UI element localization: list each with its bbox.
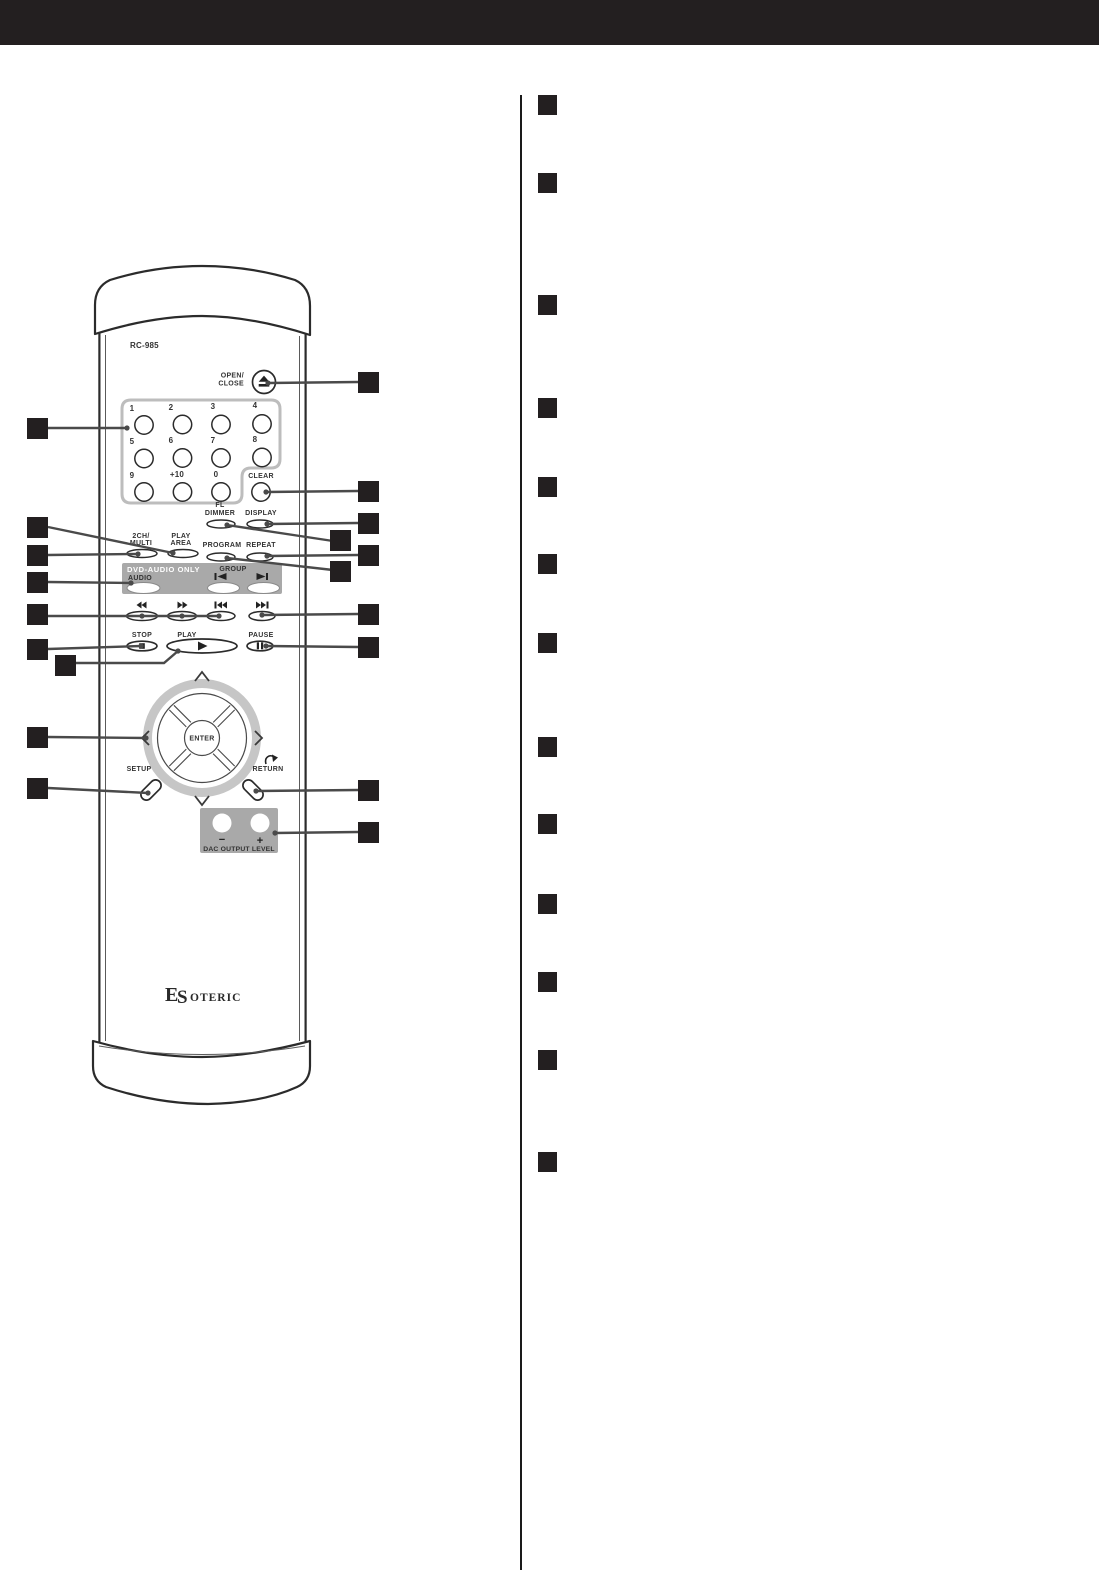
program-label: PROGRAM (203, 542, 242, 549)
section-marker (538, 398, 557, 418)
remote-top-cap (95, 266, 310, 335)
repeat-label: REPEAT (246, 542, 276, 549)
callout-box-stop (27, 639, 48, 660)
key-label-6: 6 (169, 436, 174, 445)
column-divider (520, 95, 522, 1570)
remote-diagram: RC-985 OPEN/ CLOSE 1 2 3 4 5 6 7 8 9 +10… (0, 0, 420, 1160)
key-7 (212, 449, 230, 467)
down-arrow-icon (195, 796, 209, 805)
key-4 (253, 415, 271, 433)
section-marker (538, 814, 557, 834)
dac-minus-button (213, 814, 232, 833)
key-label-5: 5 (130, 437, 135, 446)
key-label-7: 7 (211, 436, 216, 445)
program-button (207, 553, 235, 561)
group-next-button (248, 583, 280, 594)
section-marker (538, 1152, 557, 1172)
key-label-plus10: +10 (170, 470, 185, 479)
callout-box-2ch-multi (27, 545, 48, 566)
logo-rest: OTERIC (190, 992, 241, 1004)
fl-dimmer-button (207, 520, 235, 528)
fl-dimmer-label: DIMMER (205, 510, 235, 517)
group-label: GROUP (219, 566, 246, 573)
fl-dimmer-label: FL (215, 502, 225, 509)
callout-box-skip (358, 604, 379, 625)
play-area-label: AREA (170, 540, 191, 547)
callout-box-scan (27, 604, 48, 625)
key-label-2: 2 (169, 403, 174, 412)
section-marker (538, 173, 557, 193)
pause-label: PAUSE (248, 632, 273, 639)
callout-box-program (330, 561, 351, 582)
callout-box-pause (358, 637, 379, 658)
keypad: 1 2 3 4 5 6 7 8 9 +10 0 (130, 401, 272, 501)
group-previous-button (208, 583, 240, 594)
enter-label: ENTER (189, 736, 214, 743)
callout-box-fl-dimmer (330, 530, 351, 551)
key-label-3: 3 (211, 402, 216, 411)
key-8 (253, 448, 271, 466)
rewind-icon (137, 602, 147, 609)
section-marker (538, 295, 557, 315)
section-marker (538, 972, 557, 992)
open-close-label: CLOSE (218, 381, 244, 388)
callout-box-return (358, 780, 379, 801)
section-marker (538, 894, 557, 914)
callout-box-clear (358, 481, 379, 502)
callout-box-keypad (27, 418, 48, 439)
key-9 (135, 483, 153, 501)
key-plus10 (173, 483, 191, 501)
manual-page: RC-985 OPEN/ CLOSE 1 2 3 4 5 6 7 8 9 +10… (0, 0, 1099, 1570)
callout-box-dac (358, 822, 379, 843)
section-marker (538, 554, 557, 574)
key-2 (173, 415, 191, 433)
setup-button (139, 778, 164, 803)
callout-box-direction (27, 727, 48, 748)
key-label-9: 9 (130, 471, 135, 480)
section-marker (538, 633, 557, 653)
dvd-audio-panel-label: DVD-AUDIO ONLY (127, 565, 200, 574)
section-marker (538, 1050, 557, 1070)
key-5 (135, 449, 153, 467)
2ch-multi-label: 2CH/ (132, 533, 149, 540)
key-label-1: 1 (130, 404, 135, 413)
key-1 (135, 416, 153, 434)
key-6 (173, 449, 191, 467)
open-close-label: OPEN/ (221, 373, 244, 380)
play-label: PLAY (177, 632, 196, 639)
stop-label: STOP (132, 632, 152, 639)
key-label-4: 4 (253, 401, 258, 410)
callout-box-display (358, 513, 379, 534)
model-label: RC-985 (130, 341, 159, 350)
section-marker (538, 737, 557, 757)
setup-label: SETUP (127, 766, 152, 773)
key-0 (212, 483, 230, 501)
callout-box-play-area (27, 517, 48, 538)
dac-output-level-label: DAC OUTPUT LEVEL (203, 846, 275, 853)
return-label: RETURN (253, 766, 284, 773)
esoteric-logo: E S OTERIC (165, 984, 241, 1008)
key-3 (212, 415, 230, 433)
return-arrow-icon (266, 755, 278, 765)
callout-box-setup (27, 778, 48, 799)
minus-label: − (219, 834, 225, 846)
section-marker (538, 477, 557, 497)
display-label: DISPLAY (245, 510, 277, 517)
callout-box-audio (27, 572, 48, 593)
logo-letter-s: S (177, 987, 188, 1008)
section-marker (538, 95, 557, 115)
key-label-0: 0 (214, 470, 219, 479)
callout-box-repeat (358, 545, 379, 566)
remote-bottom-cap (93, 1041, 310, 1104)
play-area-label: PLAY (171, 533, 190, 540)
callout-box-open-close (358, 372, 379, 393)
dac-plus-button (251, 814, 270, 833)
callout-box-play (55, 655, 76, 676)
clear-label: CLEAR (248, 473, 274, 480)
skip-next-icon (256, 602, 269, 609)
fast-forward-icon (178, 602, 188, 609)
key-label-8: 8 (253, 435, 258, 444)
skip-previous-icon (215, 602, 228, 609)
